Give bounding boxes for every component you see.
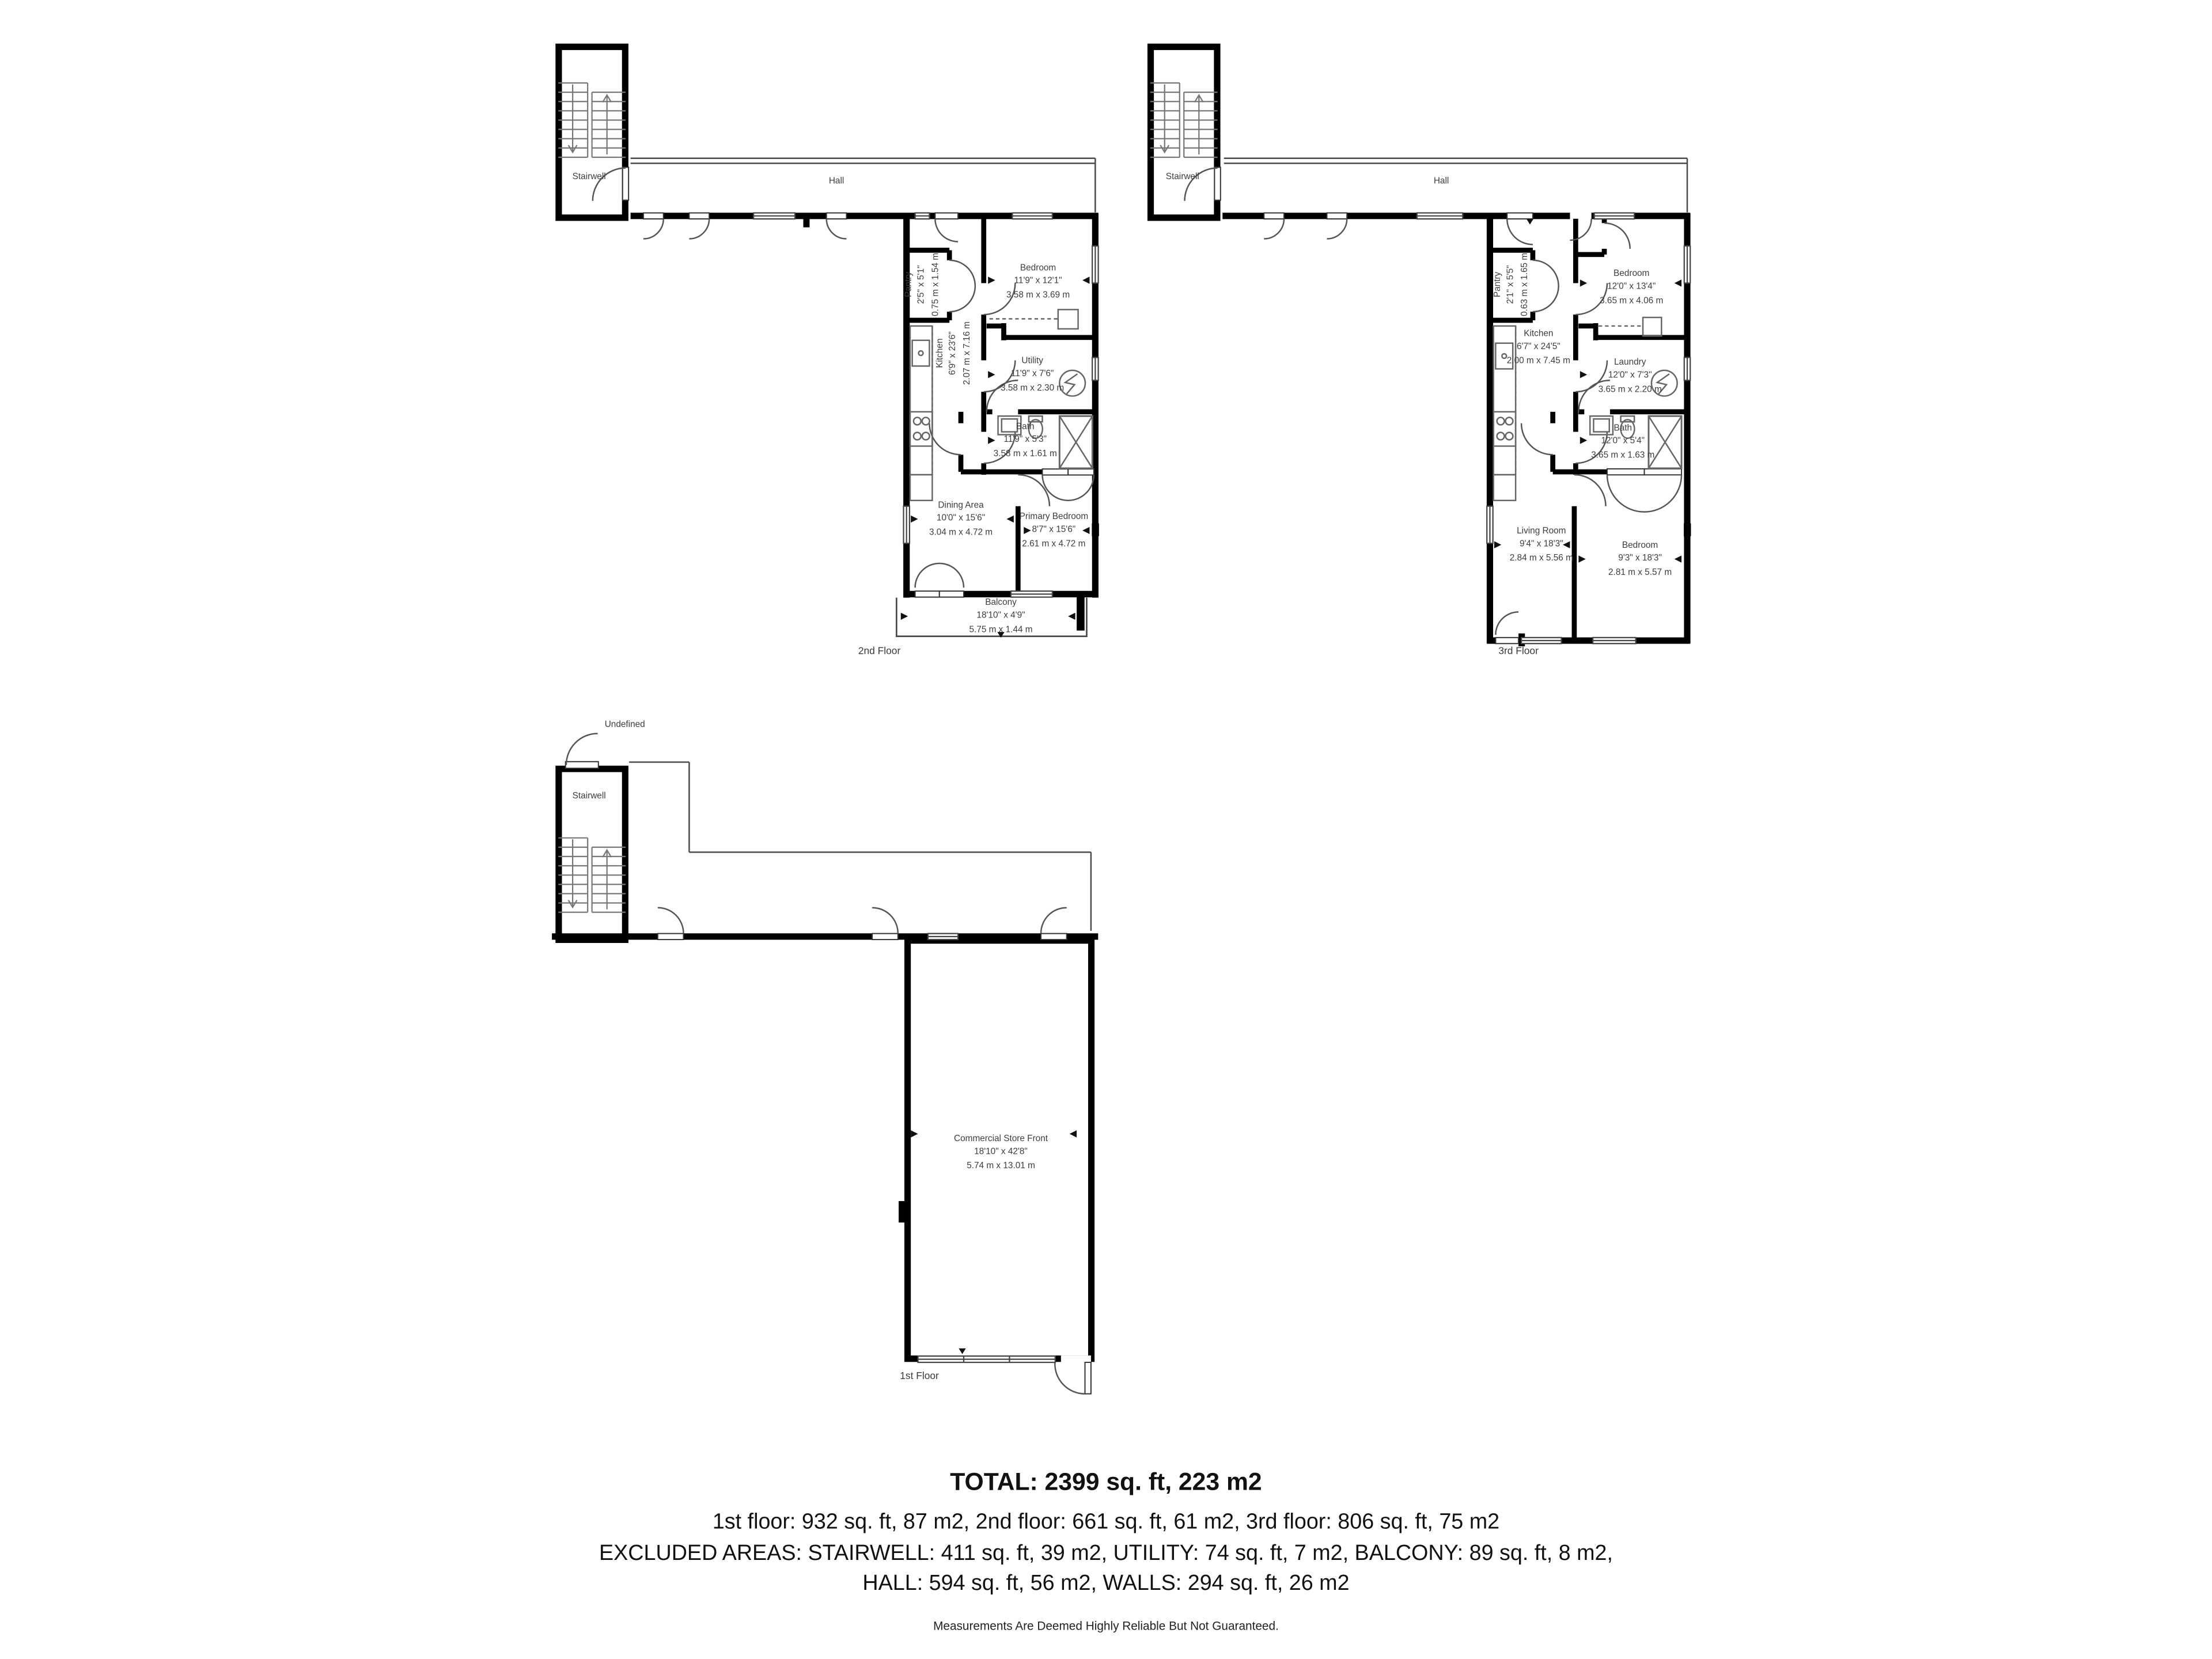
room-label-hall-f3: Hall	[1434, 175, 1449, 188]
floor-caption-3rd: 3rd Floor	[1498, 647, 1539, 657]
door-leaf	[915, 591, 940, 597]
door-leaf	[658, 934, 684, 940]
door-arc	[872, 908, 898, 934]
door-arc	[1604, 223, 1630, 249]
door-arc	[1327, 219, 1347, 239]
room-label-stairwell-f1: Stairwell	[573, 790, 606, 803]
door-arc	[1018, 475, 1050, 506]
floor1-doors	[566, 733, 1091, 1393]
room-label-stairwell-f3: Stairwell	[1166, 171, 1199, 184]
double-door-arcs	[915, 563, 964, 588]
room-label-undefined-f1: Undefined	[605, 718, 645, 732]
closet-door-arcs	[1607, 475, 1681, 512]
door-arc	[566, 733, 598, 765]
kitchen-sink-icon	[912, 340, 930, 366]
door-leaf	[935, 213, 958, 219]
room-label-store-f1: Commercial Store Front18'10" x 42'8"5.74…	[954, 1132, 1048, 1172]
door-arc	[1495, 612, 1518, 635]
room-label-living-room-f3: Living Room9'4" x 18'3"2.84 m x 5.56 m	[1510, 525, 1573, 565]
door-arc	[1264, 219, 1284, 239]
stove-icon	[1494, 412, 1516, 446]
floor2-walls	[559, 47, 1099, 597]
door-leaf	[689, 213, 709, 219]
wall-stub	[899, 1201, 908, 1222]
door-leaf	[1495, 638, 1518, 643]
closet-door-leaf	[1645, 469, 1682, 475]
closet-door-leaf	[1607, 469, 1645, 475]
door-arc	[1533, 260, 1559, 286]
room-label-primary-bedroom-f2: Primary Bedroom8'7" x 15'6"2.61 m x 4.72…	[1020, 510, 1088, 550]
room-label-bedroom-f2: Bedroom11'9" x 12'1"3.58 m x 3.69 m	[1006, 262, 1070, 301]
kitchen-counter-icon	[910, 475, 932, 501]
room-label-pantry-f2: Pantry2'5" x 5'1"0.75 m x 1.54 m	[902, 253, 942, 316]
floorplan-page: Stairwell Hall Pantry2'5" x 5'1"0.75 m x…	[0, 0, 2212, 1658]
area-summary: TOTAL: 2399 sq. ft, 223 m2 1st floor: 93…	[0, 1467, 2212, 1645]
door-arc	[689, 219, 709, 239]
wall-stub	[1684, 523, 1691, 536]
wall-stub	[803, 214, 809, 227]
door-arc	[1055, 1362, 1085, 1394]
floor-caption-1st: 1st Floor	[900, 1372, 939, 1382]
room-label-balcony-f2: Balcony18'10" x 4'9"5.75 m x 1.44 m	[969, 596, 1032, 636]
door-arc	[929, 423, 961, 455]
floorplan-drawing	[0, 0, 2212, 1658]
room-label-kitchen-f3: Kitchen6'7" x 24'5"2.00 m x 7.45 m	[1507, 328, 1570, 368]
door-leaf	[1041, 934, 1067, 940]
floor-caption-2nd: 2nd Floor	[858, 647, 900, 657]
door-leaf	[1327, 213, 1347, 219]
door-arc	[1041, 908, 1067, 934]
disclaimer-text: Measurements Are Deemed Highly Reliable …	[0, 1618, 2212, 1633]
closet-door-leaf	[1068, 469, 1094, 475]
room-label-bedroom2-f3: Bedroom9'3" x 18'3"2.81 m x 5.57 m	[1608, 539, 1672, 579]
floor-areas-text: 1st floor: 932 sq. ft, 87 m2, 2nd floor:…	[0, 1507, 2212, 1538]
room-label-utility-f2: Utility11'9" x 7'6"3.58 m x 2.30 m	[1001, 355, 1064, 395]
closet-door-leaf	[1043, 469, 1069, 475]
room-label-bath-f2: Bath11'9" x 5'3"3.58 m x 1.61 m	[994, 421, 1057, 460]
door-arc	[949, 286, 975, 312]
door-leaf	[1214, 167, 1220, 200]
floor1-hall-lines	[629, 762, 1091, 931]
floor2-hall-lines	[631, 158, 1096, 213]
room-label-pantry-f3: Pantry2'1" x 5'5"0.63 m x 1.65 m	[1491, 253, 1531, 316]
door-arc	[827, 219, 847, 239]
door-leaf	[872, 934, 898, 940]
floor1-plan	[552, 733, 1098, 1393]
kitchen-counter-icon	[1494, 475, 1516, 501]
door-arc	[1574, 475, 1606, 506]
door-arc	[949, 260, 975, 286]
room-label-stairwell-f2: Stairwell	[573, 171, 606, 184]
wall-stub	[1092, 523, 1099, 536]
stove-icon	[910, 412, 932, 446]
closet-door-arcs	[1043, 475, 1094, 501]
room-label-hall-f2: Hall	[829, 175, 844, 188]
door-arc	[643, 219, 664, 239]
wardrobe-icon	[1058, 309, 1078, 329]
floor1-walls	[552, 769, 1098, 1359]
door-leaf	[827, 213, 847, 219]
floor3-doors	[1185, 167, 1682, 643]
room-label-bath-f3: Bath12'0" x 5'4"3.65 m x 1.63 m	[1591, 422, 1654, 461]
room-label-bedroom-f3: Bedroom12'0" x 13'4"3.65 m x 4.06 m	[1600, 267, 1663, 307]
door-leaf	[940, 591, 964, 597]
door-leaf	[1264, 213, 1284, 219]
room-label-laundry-f3: Laundry12'0" x 7'3"3.65 m x 2.20 m	[1599, 356, 1662, 396]
door-leaf	[623, 167, 628, 200]
door-arc	[1521, 423, 1553, 455]
door-leaf	[566, 762, 599, 768]
total-area-text: TOTAL: 2399 sq. ft, 223 m2	[0, 1467, 2212, 1497]
room-label-dining-f2: Dining Area10'0" x 15'6"3.04 m x 4.72 m	[929, 499, 993, 539]
floor3-hall-lines	[1224, 158, 1687, 213]
excluded-areas-text-2: HALL: 594 sq. ft, 56 m2, WALLS: 294 sq. …	[0, 1569, 2212, 1600]
toilet-icon	[1621, 416, 1635, 422]
door-arc	[1533, 286, 1559, 312]
door-leaf	[1507, 213, 1533, 219]
wardrobe-icon	[1643, 317, 1661, 336]
room-label-kitchen-f2: Kitchen6'9" x 23'6"2.07 m x 7.16 m	[934, 321, 974, 385]
door-arc	[658, 908, 684, 934]
door-arc	[935, 219, 958, 242]
floor2-plan	[558, 47, 1099, 638]
door-leaf	[1085, 1362, 1090, 1394]
excluded-areas-text-1: EXCLUDED AREAS: STAIRWELL: 411 sq. ft, 3…	[0, 1538, 2212, 1569]
door-leaf	[643, 213, 664, 219]
